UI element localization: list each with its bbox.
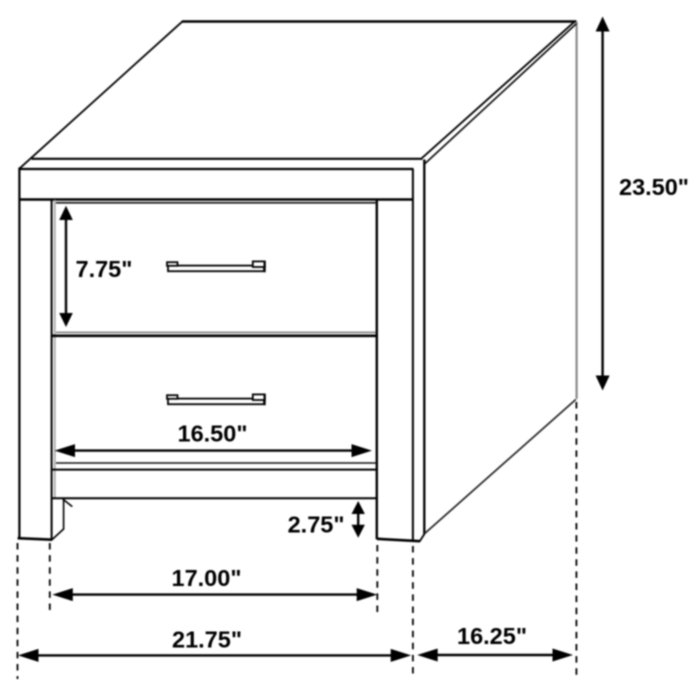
svg-text:16.25": 16.25" (457, 623, 527, 649)
svg-text:2.75": 2.75" (288, 512, 345, 538)
svg-text:21.75": 21.75" (172, 627, 242, 653)
svg-text:17.00": 17.00" (172, 565, 242, 591)
svg-text:7.75": 7.75" (76, 256, 133, 282)
svg-text:16.50": 16.50" (178, 421, 248, 447)
svg-text:23.50": 23.50" (619, 174, 689, 200)
